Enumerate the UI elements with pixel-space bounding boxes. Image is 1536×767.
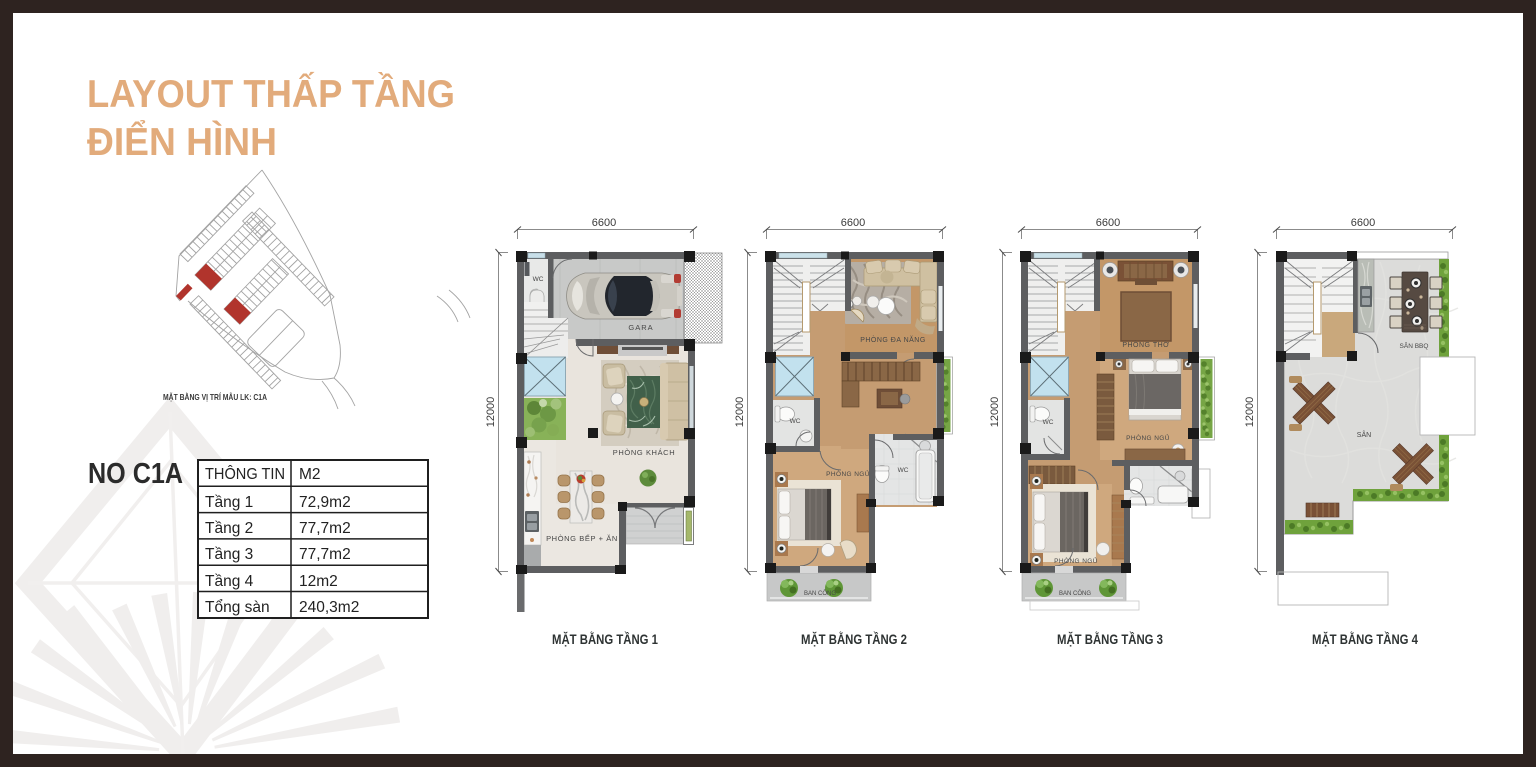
svg-text:GARA: GARA <box>628 323 653 332</box>
svg-text:BAN CÔNG: BAN CÔNG <box>1059 590 1091 597</box>
svg-text:WC: WC <box>898 467 909 474</box>
svg-text:77,7m2: 77,7m2 <box>299 520 351 537</box>
svg-text:6600: 6600 <box>592 217 616 229</box>
svg-text:MẶT BẰNG TẦNG 2: MẶT BẰNG TẦNG 2 <box>801 630 907 647</box>
svg-text:Tầng 3: Tầng 3 <box>205 546 253 563</box>
svg-text:PHÒNG NGỦ: PHÒNG NGỦ <box>826 469 870 478</box>
svg-text:6600: 6600 <box>1096 217 1120 229</box>
svg-text:SÂN: SÂN <box>1357 430 1371 439</box>
svg-text:ĐIỂN HÌNH: ĐIỂN HÌNH <box>87 119 277 164</box>
svg-text:PHÒNG BẾP + ĂN: PHÒNG BẾP + ĂN <box>546 533 618 543</box>
svg-text:12000: 12000 <box>989 397 1001 428</box>
svg-text:Tầng 1: Tầng 1 <box>205 494 253 511</box>
svg-text:WC: WC <box>1043 419 1054 426</box>
svg-text:240,3m2: 240,3m2 <box>299 599 359 616</box>
svg-text:72,9m2: 72,9m2 <box>299 494 351 511</box>
svg-text:LAYOUT THẤP TẦNG: LAYOUT THẤP TẦNG <box>87 72 455 116</box>
svg-text:THÔNG TIN: THÔNG TIN <box>205 466 285 483</box>
svg-text:WC: WC <box>533 276 544 283</box>
svg-text:77,7m2: 77,7m2 <box>299 546 351 563</box>
svg-text:PHÒNG THỜ: PHÒNG THỜ <box>1122 340 1169 349</box>
svg-text:PHÒNG NGỦ: PHÒNG NGỦ <box>1054 556 1098 565</box>
svg-text:6600: 6600 <box>1351 217 1375 229</box>
svg-text:MẶT BẰNG TẦNG 3: MẶT BẰNG TẦNG 3 <box>1057 630 1163 647</box>
svg-text:MẶT BẰNG TẦNG 4: MẶT BẰNG TẦNG 4 <box>1312 630 1418 647</box>
svg-text:6600: 6600 <box>841 217 865 229</box>
svg-text:BAN CÔNG: BAN CÔNG <box>804 590 836 597</box>
svg-text:PHÒNG NGỦ: PHÒNG NGỦ <box>1126 433 1170 442</box>
svg-text:MẶT BẰNG TẦNG 1: MẶT BẰNG TẦNG 1 <box>552 630 658 647</box>
svg-text:PHÒNG KHÁCH: PHÒNG KHÁCH <box>613 448 675 457</box>
svg-text:12000: 12000 <box>734 397 746 428</box>
svg-text:M2: M2 <box>299 466 321 483</box>
svg-text:MẶT BẰNG VỊ TRÍ MẪU LK: C1A: MẶT BẰNG VỊ TRÍ MẪU LK: C1A <box>163 391 267 402</box>
svg-text:Tầng 4: Tầng 4 <box>205 573 254 590</box>
svg-text:12m2: 12m2 <box>299 573 338 590</box>
svg-text:SÂN BBQ: SÂN BBQ <box>1400 341 1429 350</box>
svg-text:WC: WC <box>790 418 801 425</box>
svg-text:NO C1A: NO C1A <box>88 458 183 490</box>
svg-text:Tổng sàn: Tổng sàn <box>205 599 270 616</box>
svg-text:12000: 12000 <box>1244 397 1256 428</box>
svg-text:12000: 12000 <box>485 397 497 428</box>
svg-text:Tầng 2: Tầng 2 <box>205 520 253 537</box>
svg-text:PHÒNG ĐA NĂNG: PHÒNG ĐA NĂNG <box>860 335 926 344</box>
